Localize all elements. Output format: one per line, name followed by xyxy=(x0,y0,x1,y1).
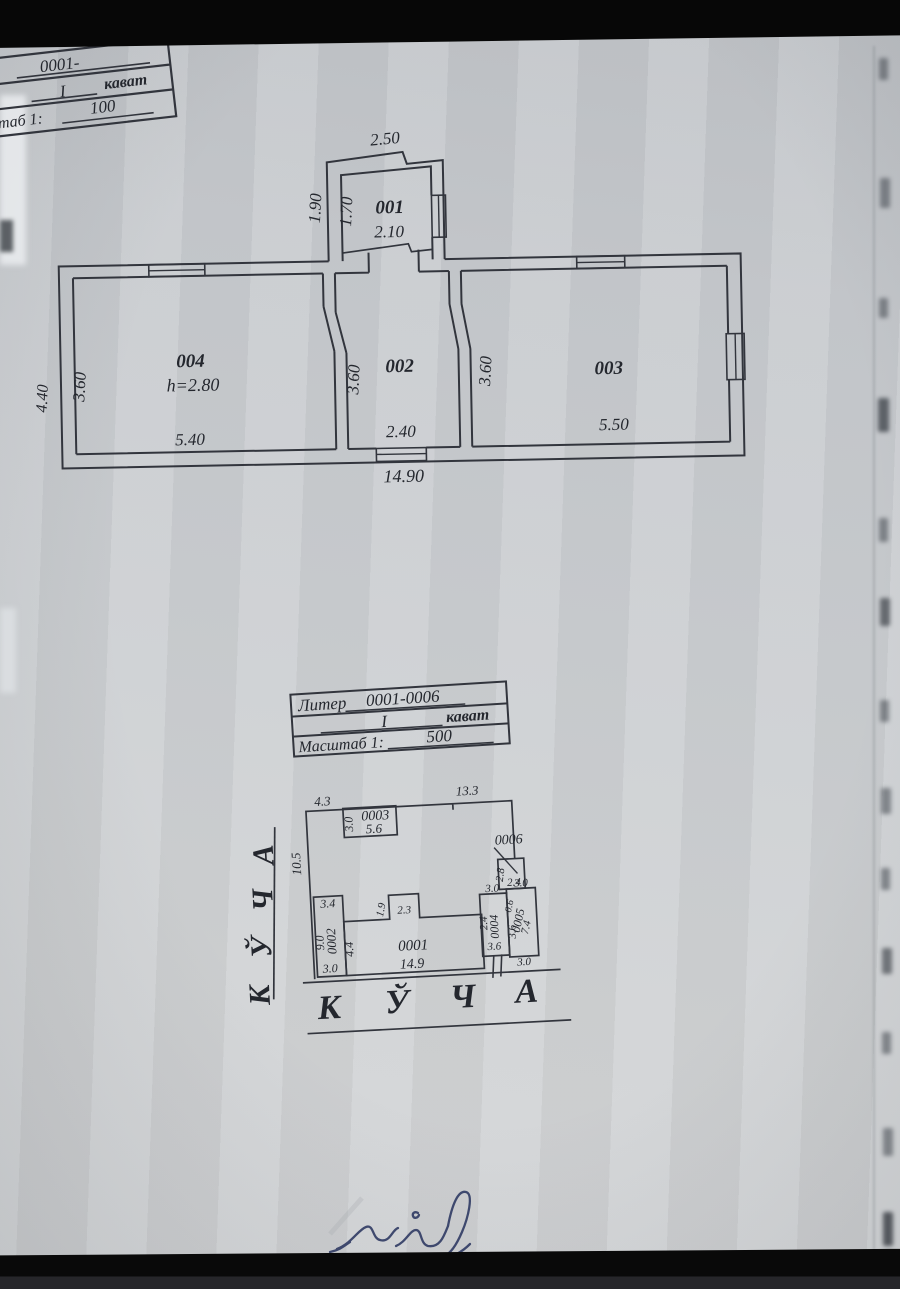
dim-0002-bottom: 3.0 xyxy=(321,961,338,976)
corner-table-liter-value: 0001- xyxy=(39,53,81,76)
floor-plan: 2.50 1.90 1.70 001 2.10 004 h=2.80 3.60 … xyxy=(28,121,747,493)
page-edge-smudge xyxy=(881,788,891,814)
dim-0002-top: 3.4 xyxy=(319,896,336,911)
street-bottom-underline xyxy=(308,1020,572,1034)
dim-parcel-top-right: 13.3 xyxy=(455,782,479,798)
street-bottom-letter: Ч xyxy=(449,978,478,1016)
room002-id: 002 xyxy=(385,356,414,378)
signature-stroke xyxy=(396,1226,448,1246)
dim-room002-bottom: 2.40 xyxy=(386,422,417,442)
divider-004-002 xyxy=(323,273,348,449)
page-edge-smudge xyxy=(882,948,892,974)
dim-0006-w: 2.8 xyxy=(494,867,508,883)
dim-0003-l: 5.6 xyxy=(365,820,383,836)
street-bottom-letter: А xyxy=(512,972,541,1010)
dim-0001-left: 4.4 xyxy=(342,942,357,958)
dim-0001-bump-h: 1.9 xyxy=(374,901,389,917)
corner-table-scale-label: таб 1: xyxy=(0,110,44,132)
room004-top-window xyxy=(149,264,205,277)
dim-room002-left: 3.60 xyxy=(343,364,364,396)
corner-table-scale-value: 100 xyxy=(89,96,117,118)
dim-0005-b: 7.4 xyxy=(519,919,534,935)
dim-porch-top: 2.50 xyxy=(369,128,401,150)
building-inner-top-wall xyxy=(73,244,727,279)
signature-stroke xyxy=(444,1192,470,1257)
building-0002-id: 0002 xyxy=(323,927,339,954)
dim-porch-left-inner: 1.70 xyxy=(336,196,357,227)
dim-parcel-left: 10.5 xyxy=(288,852,304,876)
room003-top-window xyxy=(577,256,625,269)
street-label-left: К Ў Ч А xyxy=(236,842,288,1007)
divider-002-003 xyxy=(449,271,472,447)
page-edge-smudge xyxy=(880,598,890,626)
room001-id: 001 xyxy=(375,197,404,219)
street-left-letter: А xyxy=(247,842,281,868)
page-edge-smudge xyxy=(882,1032,891,1054)
page-edge-smudge xyxy=(879,518,888,542)
dim-room004-left: 3.60 xyxy=(69,371,90,403)
building-0006-id: 0006 xyxy=(494,832,523,848)
dim-parcel-top-left: 4.3 xyxy=(314,793,332,809)
room004-height: h=2.80 xyxy=(167,374,220,395)
document-artwork: 0001- I кават таб 1: 100 xyxy=(0,0,900,1289)
street-left-letter: К xyxy=(243,982,277,1007)
page-edge-smudge xyxy=(878,398,889,432)
legend-table: Литер 0001-0006 I кават Масштаб 1: 500 xyxy=(290,681,509,756)
page-edge-smudge xyxy=(881,868,890,890)
page-edge-smudge xyxy=(880,178,890,208)
porch-floor-line xyxy=(342,243,432,253)
dim-0001-bump-w: 2.3 xyxy=(397,904,412,917)
dim-0003-w: 3.0 xyxy=(341,816,356,833)
corner-table: 0001- I кават таб 1: 100 xyxy=(0,39,176,140)
corner-table-floor-unit: кават xyxy=(103,71,148,93)
dim-room003-left: 3.60 xyxy=(475,355,496,387)
gate-ticks xyxy=(492,954,503,977)
legend-floor-unit: кават xyxy=(446,707,490,727)
street-bottom-letter: К xyxy=(316,989,344,1027)
dim-room004-bottom: 5.40 xyxy=(175,430,206,450)
building-0001-id: 0001 xyxy=(398,937,429,955)
page-edge-smudge xyxy=(879,58,888,80)
legend-liter-label: Литер xyxy=(296,693,346,715)
room003-id: 003 xyxy=(594,358,623,380)
street-left-letter: Ў xyxy=(243,933,278,959)
room004-id: 004 xyxy=(176,351,205,373)
page-edge-smudge xyxy=(883,1212,893,1246)
dim-room003-bottom: 5.50 xyxy=(599,415,630,435)
photo-streak xyxy=(330,1198,362,1234)
building-0004-id: 0004 xyxy=(487,914,502,939)
page-edge-smudge xyxy=(880,700,889,722)
signature-stroke xyxy=(413,1212,419,1218)
site-plan: 4.3 13.3 10.5 0003 3.0 5.6 0006 2.8 2.4 … xyxy=(233,778,571,1037)
dim-0005-top: 3.0 xyxy=(513,877,529,890)
dim-0005-bottom: 3.0 xyxy=(516,956,532,969)
dim-porch-left-outer: 1.90 xyxy=(305,192,326,223)
signature xyxy=(330,1192,470,1257)
dim-porch-bottom: 2.10 xyxy=(374,222,405,242)
page-edge-smudge xyxy=(883,1128,893,1156)
dim-0004-top: 3.0 xyxy=(484,882,500,895)
legend-scale-label: Масштаб 1: xyxy=(297,734,384,756)
page-edge-line xyxy=(873,46,875,1251)
dim-0001-bottom: 14.9 xyxy=(399,956,424,972)
legend-scale-value: 500 xyxy=(426,726,453,747)
dim-room004-outer-left: 4.40 xyxy=(34,384,52,413)
street-bottom-letter: Ў xyxy=(384,981,413,1021)
page-edge-smudge xyxy=(879,298,888,318)
dim-gate: 3.6 xyxy=(486,940,502,953)
room002-bottom-window xyxy=(376,448,426,462)
dim-total-width: 14.90 xyxy=(383,466,424,487)
street-left-letter: Ч xyxy=(246,886,280,912)
